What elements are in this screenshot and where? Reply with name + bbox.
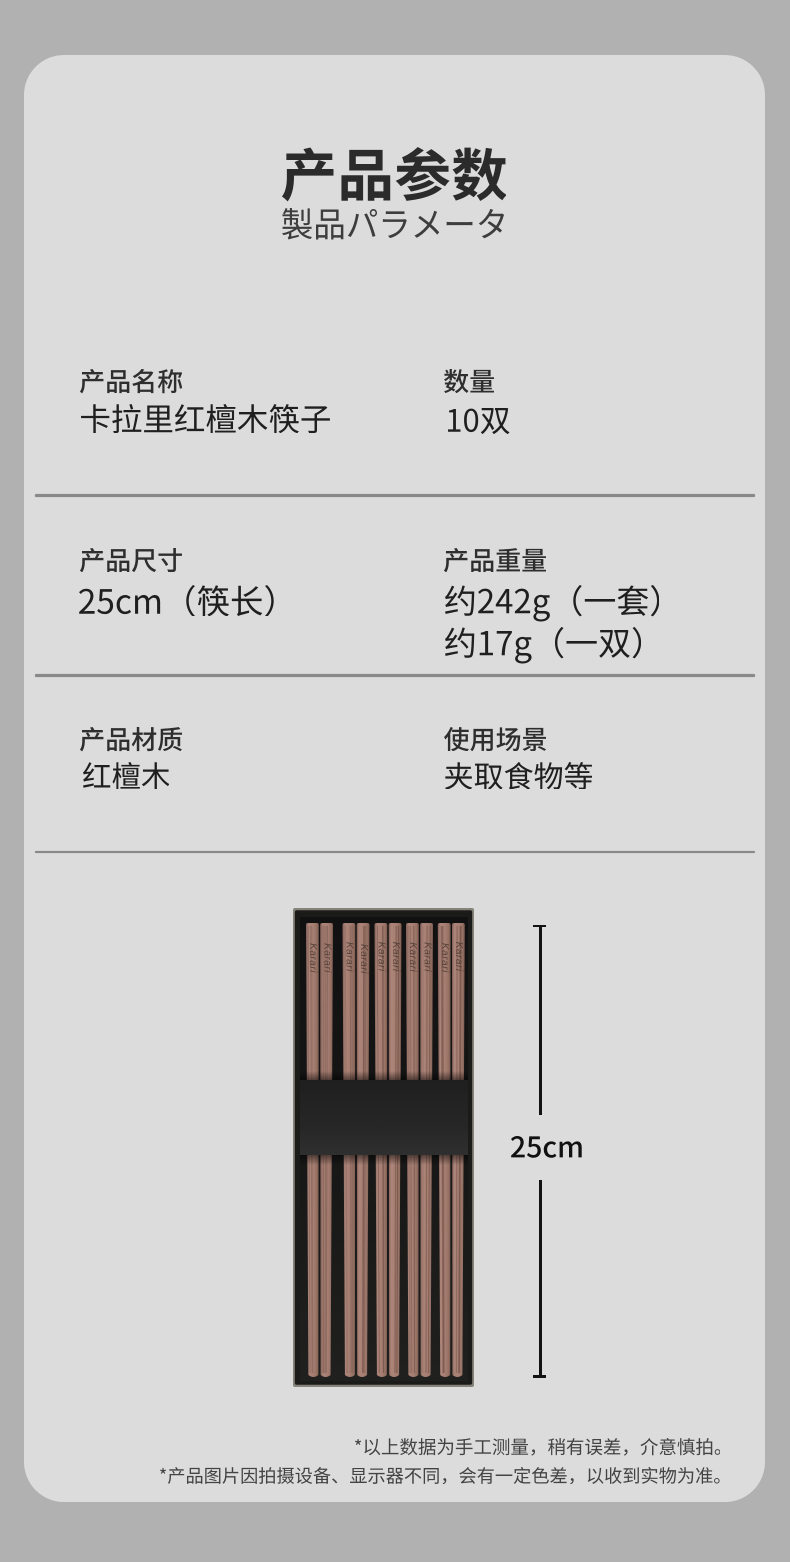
svg-text:Karari: Karari (421, 942, 432, 972)
svg-text:Karari: Karari (390, 942, 401, 972)
svg-text:Karari: Karari (376, 942, 387, 972)
svg-text:Karari: Karari (321, 943, 332, 973)
svg-text:Karari: Karari (307, 943, 318, 973)
svg-text:Karari: Karari (453, 942, 464, 972)
svg-text:Karari: Karari (439, 943, 450, 973)
svg-text:Karari: Karari (344, 942, 355, 972)
svg-text:Karari: Karari (407, 942, 418, 972)
svg-text:Karari: Karari (358, 944, 369, 974)
